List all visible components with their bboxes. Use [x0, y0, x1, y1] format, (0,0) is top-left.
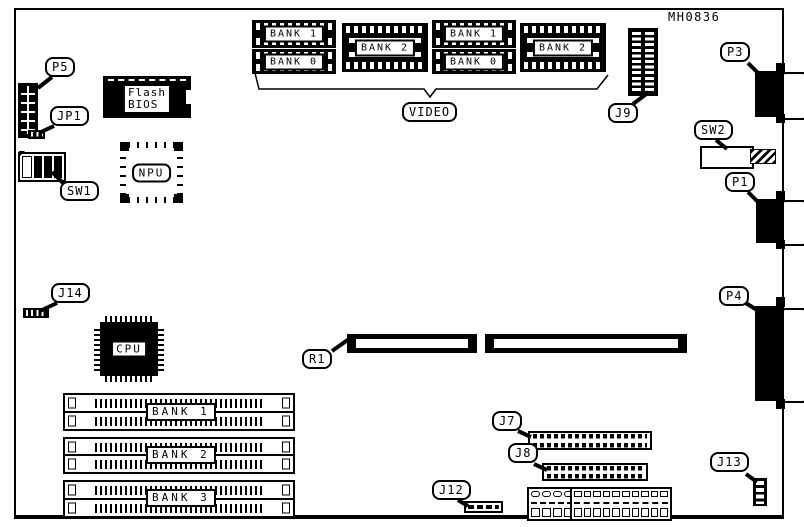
tab-row	[531, 491, 573, 497]
switch-sw2	[700, 146, 754, 169]
pin-hole	[641, 508, 649, 517]
memory-bank-label: BANK 2	[146, 446, 216, 464]
switch-cell	[44, 156, 52, 178]
tab-pin	[641, 491, 649, 497]
cpu-label: CPU	[112, 342, 146, 357]
header-j8	[542, 463, 648, 481]
tab-pin	[660, 491, 668, 497]
pin-row	[346, 26, 424, 33]
pin-hole	[531, 508, 540, 517]
callout-j13: J13	[710, 452, 749, 472]
header-j7	[528, 431, 652, 450]
tab-pin	[612, 491, 620, 497]
tab-pin	[651, 491, 659, 497]
pin-ticks	[128, 197, 175, 203]
p4-shell	[782, 308, 804, 403]
pin-ticks	[128, 142, 175, 148]
motherboard-diagram: MH0836 Flash BIOS NPU CPU	[0, 0, 804, 527]
callout-j7: J7	[492, 411, 522, 431]
figure-code: MH0836	[668, 10, 720, 24]
tab-pin	[574, 491, 582, 497]
callout-p4: P4	[719, 286, 749, 306]
tab-pin	[632, 491, 640, 497]
p3-shell	[782, 72, 804, 120]
pin-hole	[632, 508, 640, 517]
pin-hole	[584, 508, 592, 517]
pin-column	[645, 32, 654, 92]
socket-corner	[174, 194, 183, 203]
npu-socket: NPU	[120, 142, 183, 203]
tab-pin	[622, 491, 630, 497]
pin-strip	[105, 316, 153, 322]
callout-r1: R1	[302, 349, 332, 369]
video-bank-label: BANK 1	[444, 26, 504, 43]
video-ram-chip: BANK 2	[342, 23, 428, 72]
connector-p4	[755, 306, 784, 401]
socket-corner	[120, 194, 129, 203]
mount-tab	[776, 114, 785, 123]
connector-p1	[756, 199, 784, 243]
callout-video: VIDEO	[402, 102, 457, 122]
tab-pin	[531, 491, 540, 497]
callout-sw1: SW1	[60, 181, 99, 201]
mount-tab	[776, 63, 785, 72]
power-connector	[570, 487, 672, 521]
video-ram-chip: BANK 2	[520, 23, 606, 72]
divider	[531, 502, 573, 504]
pin-hole	[593, 508, 601, 517]
callout-j14: J14	[51, 283, 90, 303]
pin-hole	[603, 508, 611, 517]
pin-hole	[553, 508, 562, 517]
callout-p3: P3	[720, 42, 750, 62]
p1-shell	[782, 200, 804, 246]
socket-corner	[120, 142, 129, 151]
mount-tab	[776, 240, 785, 249]
video-bank-label: BANK 1	[264, 26, 324, 43]
sw2-actuator	[750, 149, 776, 164]
switch-cell	[22, 156, 32, 178]
pin-strip	[105, 376, 153, 382]
tab-pin	[542, 491, 551, 497]
connector-j12	[464, 501, 503, 513]
video-ram-chip: BANK 1	[252, 20, 336, 48]
pin-hole	[612, 508, 620, 517]
pin-hole	[651, 508, 659, 517]
pin-column	[632, 32, 641, 92]
connector-j13	[753, 478, 767, 506]
video-ram-chip: BANK 0	[252, 49, 336, 74]
connector-j14	[23, 308, 49, 318]
callout-j8: J8	[508, 443, 538, 463]
tab-pin	[603, 491, 611, 497]
mount-tab	[776, 297, 785, 307]
memory-bank-label: BANK 3	[146, 489, 216, 507]
npu-label: NPU	[132, 163, 172, 182]
cpu-chip: CPU	[100, 322, 158, 376]
callout-jp1: JP1	[50, 106, 89, 126]
pin-row	[524, 26, 602, 33]
connector-p3	[755, 71, 784, 117]
socket-corner	[174, 142, 183, 151]
pin-strip	[94, 327, 100, 371]
memory-bank-label: BANK 1	[146, 403, 216, 421]
tab-row	[574, 491, 668, 497]
video-bank-label: BANK 2	[355, 39, 415, 56]
callout-sw2: SW2	[694, 120, 733, 140]
flash-bios-chip: Flash BIOS	[103, 76, 191, 118]
mount-tab	[776, 191, 785, 200]
pin-ticks	[120, 150, 126, 195]
callout-p5: P5	[45, 57, 75, 77]
flash-bios-label: Flash BIOS	[124, 85, 170, 113]
tab-pin	[593, 491, 601, 497]
video-bank-label: BANK 0	[264, 53, 324, 70]
riser-slot	[485, 334, 687, 353]
tab-pin	[584, 491, 592, 497]
pin-ticks	[177, 150, 183, 195]
callout-j9: J9	[608, 103, 638, 123]
switch-cell	[54, 156, 62, 178]
flash-bios-label-line2: BIOS	[128, 99, 166, 111]
jumper-jp1	[28, 130, 45, 139]
video-ram-chip: BANK 0	[432, 49, 516, 74]
pin-row	[346, 62, 424, 69]
pin-hole	[574, 508, 582, 517]
divider	[574, 502, 668, 504]
dip-switch-sw1	[18, 152, 66, 182]
pin-hole	[542, 508, 551, 517]
video-bank-label: BANK 0	[444, 53, 504, 70]
pin-strip	[158, 327, 164, 371]
riser-slot	[347, 334, 477, 353]
pin-row	[524, 62, 602, 69]
video-bank-label: BANK 2	[533, 39, 593, 56]
connector-j9	[628, 28, 658, 96]
tab-pin	[553, 491, 562, 497]
video-ram-chip: BANK 1	[432, 20, 516, 48]
pin-hole	[622, 508, 630, 517]
switch-cell	[34, 156, 42, 178]
callout-j12: J12	[432, 480, 471, 500]
hole-row	[574, 508, 668, 517]
mount-tab	[776, 399, 785, 409]
pin-hole	[660, 508, 668, 517]
hole-row	[531, 508, 573, 517]
callout-p1: P1	[725, 172, 755, 192]
